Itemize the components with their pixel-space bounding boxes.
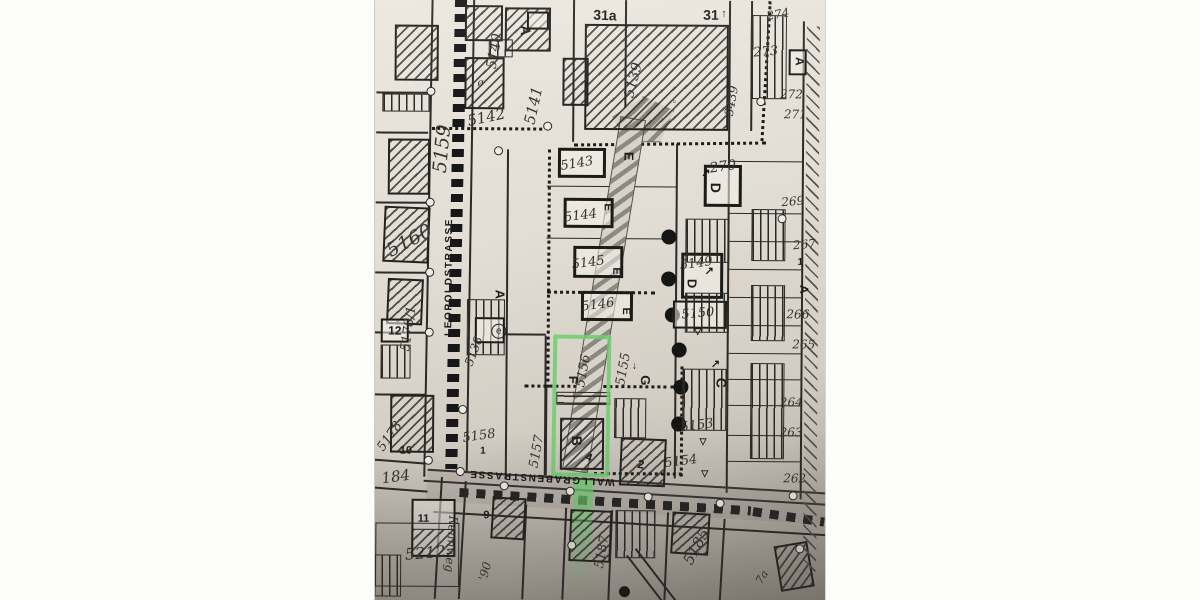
letter-a-top: A	[518, 25, 534, 35]
house-1-5158: 1	[480, 446, 486, 457]
boundary-dot	[619, 586, 630, 597]
survey-point	[567, 541, 576, 550]
survey-point	[644, 492, 653, 501]
arrow-270: ↗	[701, 166, 710, 179]
letter-b: B	[569, 436, 585, 446]
building-31a-wing	[562, 58, 588, 106]
boundary-line	[719, 519, 725, 600]
survey-point	[426, 198, 435, 207]
house-11: 11	[418, 513, 430, 525]
letter-a-topright: A	[793, 57, 807, 66]
letter-a-right: A	[797, 285, 811, 294]
row-line	[730, 161, 802, 163]
house-9: 9	[483, 509, 489, 521]
parcel-262: 262	[783, 471, 806, 485]
map-photo: LEOPOLDSTRASSEWALLGRABENSTRASSERennweg51…	[374, 0, 826, 600]
parcel-264: 264	[780, 395, 803, 409]
mark-5154: ▽	[701, 468, 708, 479]
boundary-line	[376, 201, 428, 203]
boundary-line	[376, 131, 428, 133]
parcel-267: 267	[792, 237, 816, 253]
building-terrace	[751, 285, 785, 341]
row-line	[729, 269, 801, 271]
building	[395, 25, 439, 81]
screenshot-root: LEOPOLDSTRASSEWALLGRABENSTRASSERennweg51…	[0, 0, 1200, 600]
survey-point	[456, 467, 465, 476]
survey-point	[756, 97, 765, 106]
row-line	[728, 461, 800, 463]
boundary-line	[506, 333, 546, 335]
house-1-267: 1	[797, 257, 803, 268]
building-9	[490, 496, 526, 540]
building-terrace	[382, 93, 430, 111]
letter-e-path: E	[621, 152, 636, 161]
building-terrace	[615, 510, 655, 558]
letter-f: F	[566, 376, 581, 384]
parcel-5212: 5212	[404, 542, 446, 564]
arrow-c: ↗	[711, 357, 720, 370]
survey-point	[795, 544, 804, 553]
building-terrace	[374, 554, 401, 596]
symbol-circle-slash: ø	[477, 78, 483, 89]
boundary-line	[505, 149, 509, 479]
letter-e-5144: E	[602, 203, 614, 210]
building	[388, 139, 430, 195]
dotted-boundary	[574, 141, 766, 146]
dotted-boundary	[546, 150, 551, 388]
symbol-e-circle: e	[491, 324, 506, 339]
letter-d-5149: D	[685, 279, 700, 288]
parcel-31a: 31a	[593, 7, 617, 24]
arrow-f: ↓	[571, 389, 576, 400]
mark-5153: ▽	[700, 436, 707, 447]
survey-point	[500, 481, 509, 490]
garden-strip	[614, 398, 646, 438]
letter-e-5146: E	[620, 307, 632, 314]
parcel-5158: 5158	[462, 427, 497, 446]
parcel-269: 269	[781, 193, 805, 209]
parcel-265: 265	[792, 337, 815, 351]
house-7a: 7a	[753, 568, 771, 586]
survey-point	[789, 491, 798, 500]
survey-point	[494, 146, 503, 155]
parcel-266: 266	[786, 307, 809, 321]
arrow-g: ↓	[632, 361, 637, 372]
arrow-31: ↑	[721, 8, 727, 20]
parcel-5155: 5155	[613, 352, 634, 387]
house-90: '90	[476, 560, 494, 582]
tree	[672, 343, 687, 358]
survey-point	[425, 268, 434, 277]
boundary-line	[545, 388, 547, 476]
boundary-line	[374, 459, 426, 464]
arrow-5149: ↗	[705, 264, 714, 277]
boundary-line	[375, 271, 427, 273]
parcel-272: 272	[780, 87, 803, 101]
building-31a	[584, 24, 729, 131]
parcel-5153: 5153	[680, 416, 715, 435]
parcel-263: 263	[780, 425, 803, 439]
row-line	[729, 353, 801, 355]
mark-5150: ▽	[694, 326, 701, 337]
parcel-31: 31	[703, 7, 719, 23]
survey-point	[778, 214, 787, 223]
letter-c: C	[713, 378, 729, 388]
parcel-184: 184	[380, 466, 411, 488]
street-leopoldstrasse: LEOPOLDSTRASSE	[443, 218, 455, 336]
parcel-271: 271	[784, 107, 807, 121]
tree	[661, 229, 676, 244]
parcel-5154: 5154	[663, 452, 698, 471]
building-terrace	[750, 363, 785, 459]
map-content: LEOPOLDSTRASSEWALLGRABENSTRASSERennweg51…	[374, 0, 826, 600]
boundary-line	[561, 508, 566, 600]
letter-e-5145: E	[610, 267, 622, 274]
tree	[661, 271, 676, 286]
survey-point	[426, 87, 435, 96]
symbol-square: ▫	[673, 97, 676, 107]
survey-point	[458, 405, 467, 414]
parcel-5141: 5141	[520, 85, 546, 126]
letter-g: G	[638, 375, 653, 385]
house-10: 10	[400, 445, 412, 457]
survey-point	[543, 122, 552, 131]
letter-a-mid: A	[493, 290, 508, 299]
survey-point	[566, 487, 575, 496]
survey-point	[425, 328, 434, 337]
survey-point	[424, 456, 433, 465]
parcel-5150: 5150	[681, 305, 715, 323]
parcel-273: 273	[753, 44, 779, 61]
parcel-5159: 5159	[429, 124, 455, 174]
survey-point	[716, 499, 725, 508]
letter-d-270: D	[708, 183, 724, 193]
